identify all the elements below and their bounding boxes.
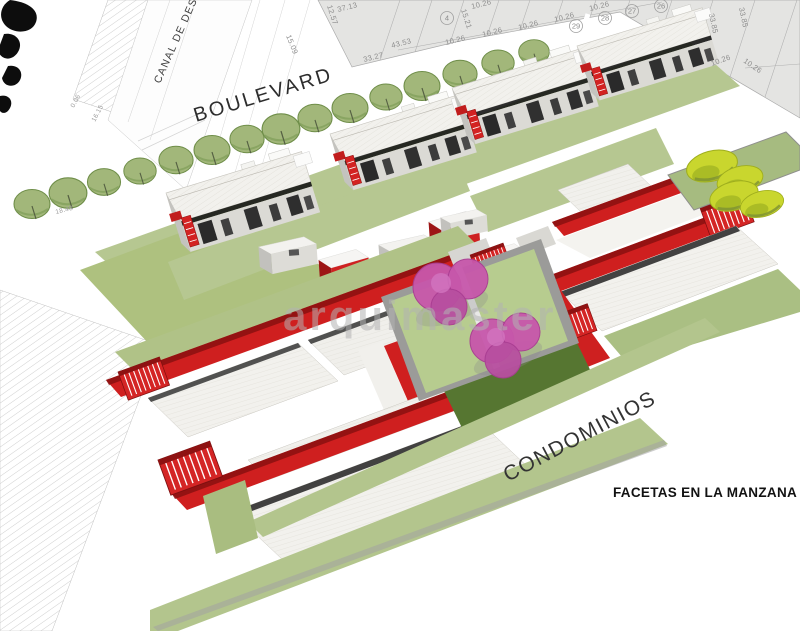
site-plan-svg: 426272829 37.1312.5715.2115.0943.5333.27… xyxy=(0,0,800,631)
svg-text:28: 28 xyxy=(601,13,609,22)
svg-text:29: 29 xyxy=(572,21,580,30)
svg-text:27: 27 xyxy=(628,6,636,15)
caption-title: FACETAS EN LA MANZANA xyxy=(613,485,797,500)
architectural-rendering: 426272829 37.1312.5715.2115.0943.5333.27… xyxy=(0,0,800,631)
watermark-text: arquimaster xyxy=(283,292,556,339)
svg-text:4: 4 xyxy=(445,13,449,22)
svg-text:26: 26 xyxy=(657,1,665,10)
